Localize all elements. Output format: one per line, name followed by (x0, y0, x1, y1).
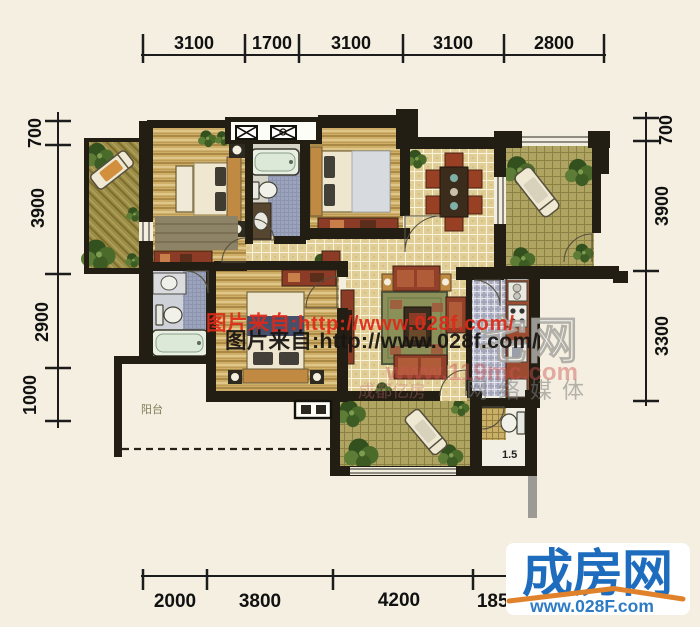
svg-text:3800: 3800 (239, 591, 281, 612)
svg-text:700: 700 (656, 115, 676, 145)
svg-text:2000: 2000 (154, 591, 196, 612)
svg-text:1.5: 1.5 (502, 449, 517, 461)
svg-text:2800: 2800 (534, 33, 574, 53)
svg-text:3900: 3900 (652, 186, 672, 226)
svg-text:3100: 3100 (433, 33, 473, 53)
svg-text:3100: 3100 (174, 33, 214, 53)
svg-text:3100: 3100 (331, 33, 371, 53)
svg-text:阳台: 阳台 (141, 402, 163, 416)
svg-text:网络媒体: 网络媒体 (466, 378, 594, 403)
svg-text:1700: 1700 (252, 33, 292, 53)
svg-text:图片来自:http://www.028f.com/: 图片来自:http://www.028f.com/ (225, 328, 538, 353)
svg-text:4200: 4200 (378, 590, 420, 611)
svg-text:3300: 3300 (652, 316, 672, 356)
svg-text:www.028F.com: www.028F.com (529, 596, 654, 616)
svg-text:700: 700 (25, 118, 45, 148)
svg-text:成都亿房: 成都亿房 (358, 382, 426, 401)
svg-text:2900: 2900 (32, 302, 52, 342)
svg-text:1000: 1000 (20, 375, 40, 415)
svg-text:3900: 3900 (28, 188, 48, 228)
